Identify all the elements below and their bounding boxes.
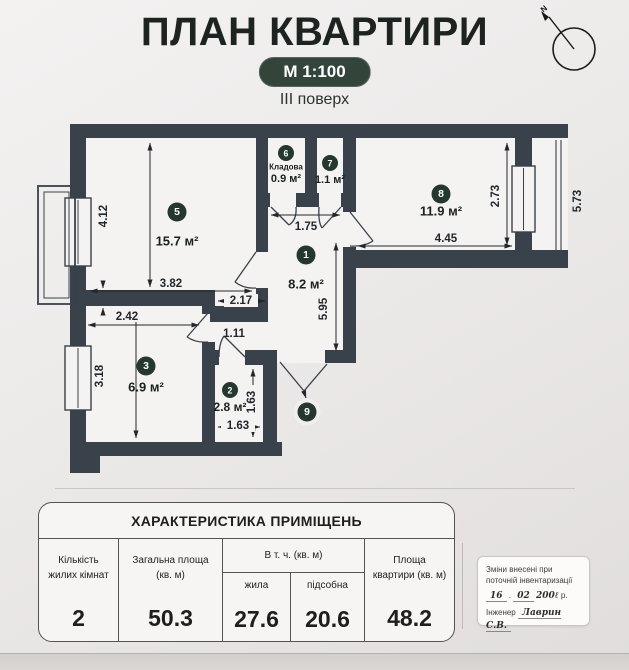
rooms-count-value: 2: [39, 596, 118, 641]
apartment-plan-sheet: 15.7 м²Кладова0.9 м²1.1 м²8.2 м²6.9 м²2.…: [0, 0, 629, 670]
stamp-left-edge-line: [462, 543, 463, 629]
column-header: Загальна площа (кв. м): [119, 539, 222, 596]
entry-door: [280, 362, 327, 391]
column-rooms: Кількість жилих кімнат 2: [39, 539, 118, 641]
window-room8: [512, 166, 535, 232]
stamp-line1: Зміни внесені при: [486, 564, 581, 575]
room-number: 2: [228, 386, 233, 396]
characteristics-table: ХАРАКТЕРИСТИКА ПРИМІЩЕНЬ Кількість жилих…: [38, 502, 455, 642]
sub-headers: жила підсобна: [223, 573, 364, 597]
page-title: ПЛАН КВАРТИРИ: [0, 10, 629, 55]
column-header: Кількість жилих кімнат: [39, 539, 118, 596]
room-number: 7: [328, 159, 333, 169]
stamp-line2: поточній інвентаризації: [486, 575, 581, 586]
column-including: В т. ч. (кв. м) жила підсобна 27.6 20.6: [222, 539, 364, 641]
window-room3: [65, 346, 91, 410]
stamp-date-row: 16 . 02 200ℓ р.: [486, 590, 581, 603]
dimension-label: 2.73: [490, 185, 502, 207]
stamp-year-suffix: р.: [561, 591, 568, 600]
dimension-label: 1.11: [223, 328, 245, 340]
room-area-label: Кладова: [269, 163, 303, 172]
room-area-label: 6.9 м²: [128, 380, 164, 395]
room-area-label: 11.9 м²: [420, 204, 463, 219]
left-balcony-outline: [38, 186, 75, 304]
living-area-value: 27.6: [223, 597, 290, 641]
stamp-year: 200ℓ: [536, 591, 559, 601]
dimension-label: 1.75: [295, 221, 318, 233]
room-number: 6: [284, 149, 289, 159]
entry-pointer: [304, 392, 306, 398]
dimension-label: 5.95: [318, 297, 330, 320]
total-area-value: 50.3: [119, 596, 222, 641]
sub-values: 27.6 20.6: [223, 597, 364, 641]
stamp-month: 02: [513, 591, 534, 602]
room-area-label: 8.2 м²: [288, 277, 324, 292]
inventory-stamp: Зміни внесені при поточній інвентаризаці…: [477, 556, 590, 626]
dimension-label: 2.17: [230, 295, 252, 307]
column-total-area: Загальна площа (кв. м) 50.3: [118, 539, 222, 641]
room-number: 8: [438, 189, 444, 200]
stamp-date-separator: .: [509, 591, 511, 600]
balcony-floor: [532, 138, 568, 252]
dimension-label: 3.82: [160, 278, 182, 290]
dimension-label: 2.42: [116, 311, 138, 323]
room-number: 9: [304, 407, 310, 418]
engineer-label: Інженер: [486, 608, 516, 617]
sheet-bottom-shadow: [0, 653, 629, 670]
sheet-edge-line: [55, 488, 575, 489]
apartment-area-value: 48.2: [365, 596, 454, 641]
room-area-label: 2.8 м²: [214, 400, 247, 414]
sub-header-living: жила: [223, 573, 290, 597]
table-grid: Кількість жилих кімнат 2 Загальна площа …: [39, 539, 454, 641]
stamp-engineer-row: Інженер Лаврин С.В.: [486, 607, 581, 632]
dimension-label: 1.63: [227, 420, 249, 432]
room-area-label: 0.9 м²: [271, 173, 301, 185]
column-header: В т. ч. (кв. м): [223, 539, 364, 573]
room-area-label: 15.7 м²: [156, 234, 200, 249]
table-title: ХАРАКТЕРИСТИКА ПРИМІЩЕНЬ: [39, 503, 454, 539]
room-number: 5: [174, 207, 180, 218]
floor-label: ІІІ поверх: [0, 91, 629, 109]
sub-header-utility: підсобна: [290, 573, 364, 597]
room-number: 3: [143, 361, 149, 372]
utility-area-value: 20.6: [290, 597, 364, 641]
dimension-label: 4.12: [98, 205, 110, 227]
dimension-label: 5.73: [572, 190, 584, 212]
dimension-label: 3.18: [94, 364, 106, 387]
scale-badge: М 1:100: [258, 57, 370, 87]
dimension-label: 4.45: [435, 233, 458, 245]
dimension-label: 1.63: [246, 391, 258, 413]
room-number: 1: [303, 250, 309, 261]
stamp-day: 16: [486, 591, 507, 602]
column-header: Площа квартири (кв. м): [365, 539, 454, 596]
room-area-label: 1.1 м²: [315, 174, 345, 186]
column-apartment-area: Площа квартири (кв. м) 48.2: [364, 539, 454, 641]
